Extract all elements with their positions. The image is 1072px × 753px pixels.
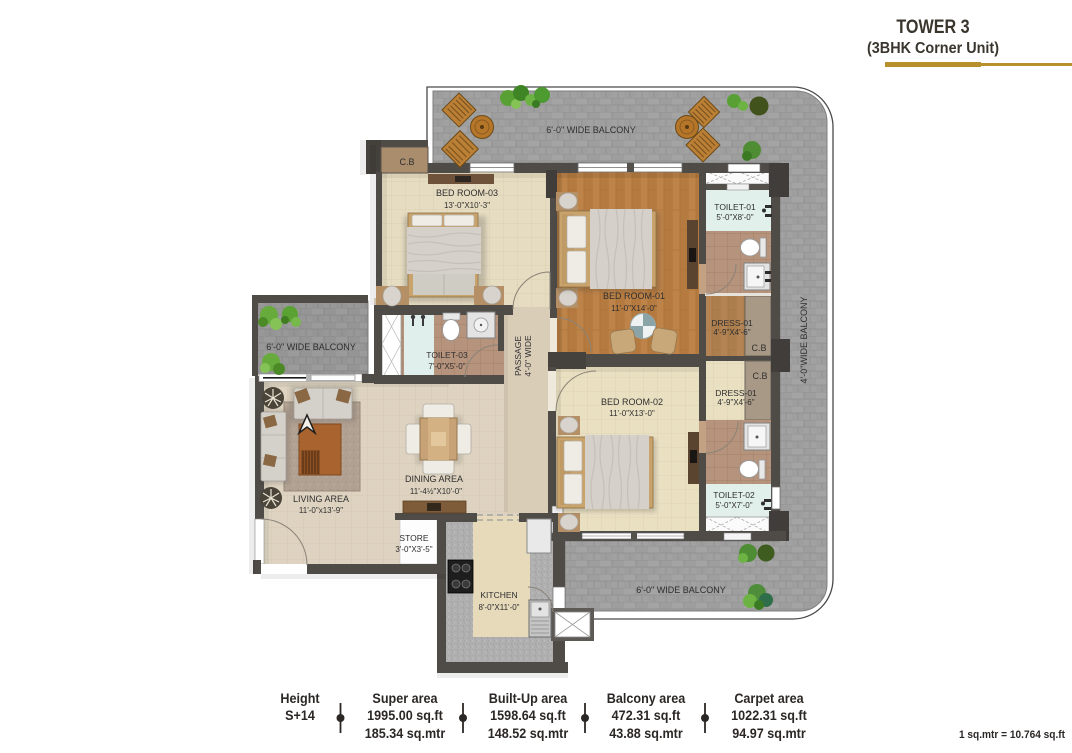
svg-text:6'-0" WIDE BALCONY: 6'-0" WIDE BALCONY bbox=[266, 342, 355, 352]
svg-text:11'-4½"X10'-0": 11'-4½"X10'-0" bbox=[410, 487, 462, 496]
svg-text:C.B: C.B bbox=[752, 371, 767, 381]
svg-text:4'-9"X4'-6": 4'-9"X4'-6" bbox=[713, 328, 750, 337]
svg-text:TOILET-01: TOILET-01 bbox=[714, 202, 756, 212]
svg-text:11'-0"X14'-0": 11'-0"X14'-0" bbox=[611, 304, 657, 313]
svg-text:DINING AREA: DINING AREA bbox=[405, 474, 463, 484]
svg-text:TOILET-02: TOILET-02 bbox=[713, 490, 755, 500]
svg-text:7'-0"X5'-0": 7'-0"X5'-0" bbox=[428, 362, 465, 371]
svg-text:C.B: C.B bbox=[751, 343, 766, 353]
svg-text:BED ROOM-03: BED ROOM-03 bbox=[436, 188, 498, 198]
svg-text:6'-0" WIDE BALCONY: 6'-0" WIDE BALCONY bbox=[546, 125, 635, 135]
svg-text:4'-9"X4'-6": 4'-9"X4'-6" bbox=[717, 398, 754, 407]
svg-text:TOILET-03: TOILET-03 bbox=[426, 350, 468, 360]
svg-text:11'-0"x13'-9": 11'-0"x13'-9" bbox=[299, 506, 343, 515]
svg-text:5'-0"X7'-0": 5'-0"X7'-0" bbox=[715, 501, 752, 510]
svg-text:3'-0"X3'-5": 3'-0"X3'-5" bbox=[395, 545, 432, 554]
svg-text:4'-0" WIDE: 4'-0" WIDE bbox=[523, 335, 533, 377]
svg-text:DRESS-01: DRESS-01 bbox=[715, 388, 757, 398]
svg-text:KITCHEN: KITCHEN bbox=[480, 590, 517, 600]
svg-text:STORE: STORE bbox=[399, 533, 428, 543]
svg-text:11'-0"X13'-0": 11'-0"X13'-0" bbox=[609, 409, 655, 418]
svg-text:BED ROOM-01: BED ROOM-01 bbox=[603, 291, 665, 301]
svg-text:C.B: C.B bbox=[399, 157, 414, 167]
svg-text:DRESS-01: DRESS-01 bbox=[711, 318, 753, 328]
svg-text:LIVING AREA: LIVING AREA bbox=[293, 494, 349, 504]
svg-text:6'-0" WIDE BALCONY: 6'-0" WIDE BALCONY bbox=[636, 585, 725, 595]
svg-text:13'-0"X10'-3": 13'-0"X10'-3" bbox=[444, 201, 490, 210]
svg-text:8'-0"X11'-0": 8'-0"X11'-0" bbox=[478, 603, 519, 612]
svg-text:PASSAGE: PASSAGE bbox=[513, 336, 523, 376]
svg-text:4'-0"WIDE BALCONY: 4'-0"WIDE BALCONY bbox=[799, 297, 809, 384]
svg-text:5'-0"X8'-0": 5'-0"X8'-0" bbox=[716, 213, 753, 222]
svg-text:BED ROOM-02: BED ROOM-02 bbox=[601, 397, 663, 407]
